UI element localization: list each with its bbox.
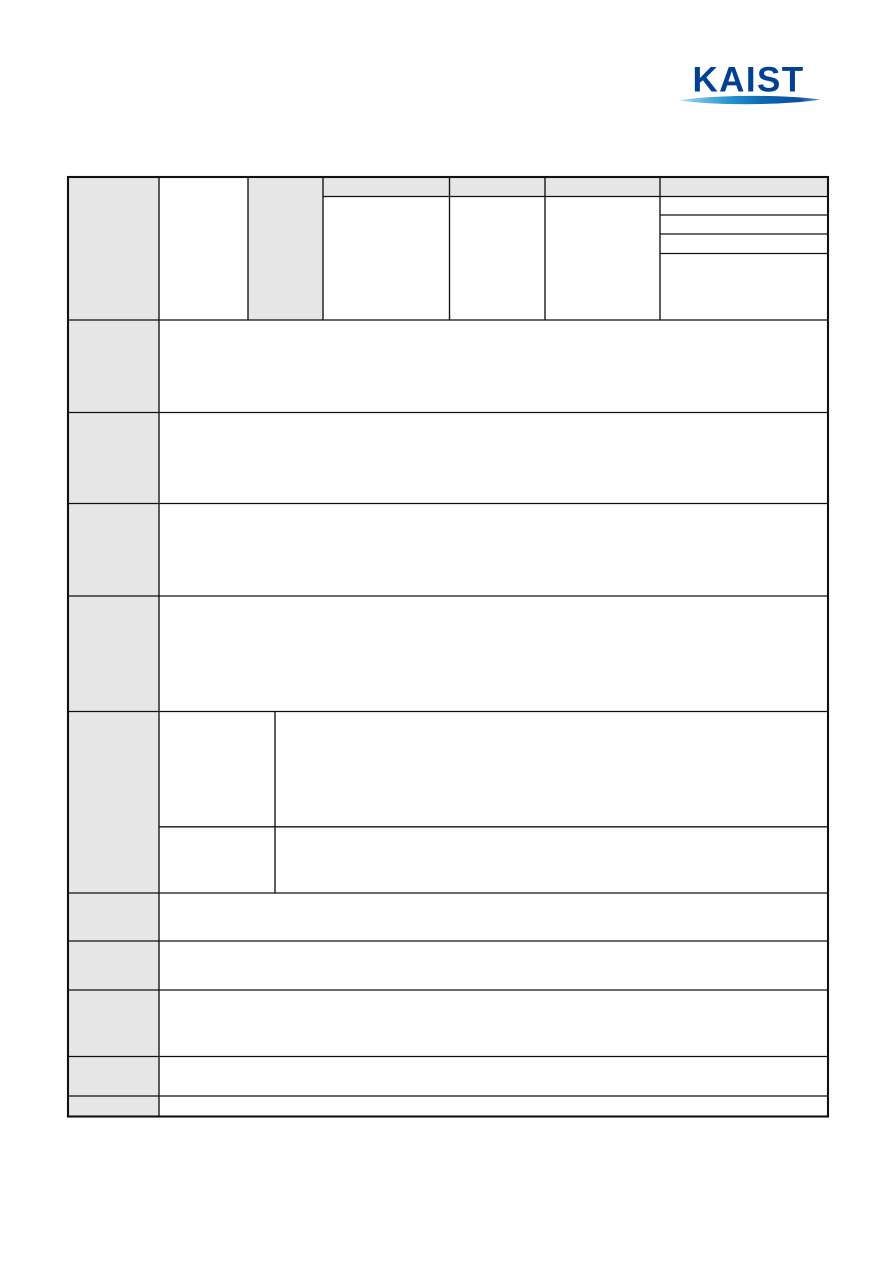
svg-text:KAIST: KAIST [693,61,805,100]
